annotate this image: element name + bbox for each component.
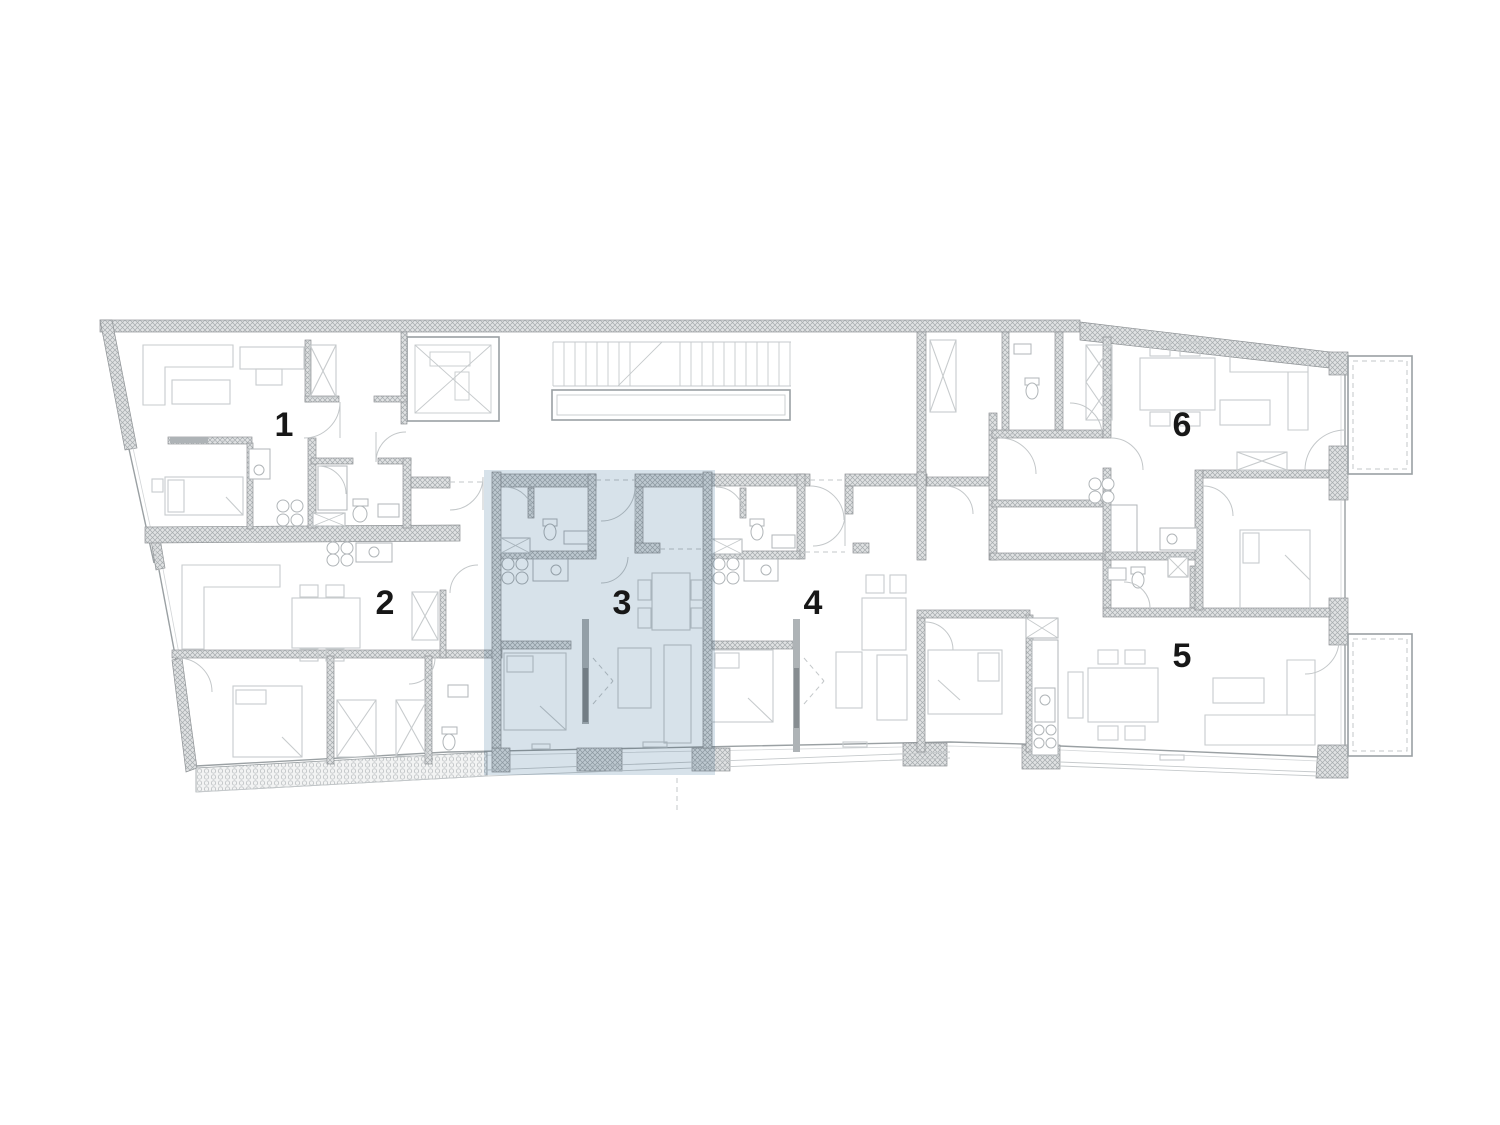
stairs: [552, 342, 791, 420]
floor-plan-page: 1 2 3 4 5 6: [0, 0, 1500, 1125]
bathroom-sink: [1014, 344, 1031, 354]
unit-6-label: 6: [1173, 406, 1192, 444]
unit-2-label: 2: [376, 584, 395, 622]
stair-railing: [552, 390, 790, 420]
unit-4-region[interactable]: [712, 472, 925, 772]
unit-2-region[interactable]: [150, 545, 480, 765]
unit-4-label: 4: [804, 584, 823, 622]
floor-plan-svg: 1 2 3 4 5 6: [0, 0, 1500, 1125]
balcony-top: [1348, 356, 1412, 474]
bed: [928, 650, 1002, 714]
unit-3-label: 3: [613, 584, 632, 622]
balcony-bottom: [1348, 634, 1412, 756]
unit-1-label: 1: [275, 406, 294, 444]
core-fixtures: [930, 340, 1039, 412]
unit-1-region[interactable]: [105, 332, 425, 528]
stair-core: [401, 332, 791, 424]
unit-6-region[interactable]: [1085, 340, 1345, 620]
unit-3-highlight[interactable]: [484, 470, 715, 775]
unit-hotspots: [105, 332, 1345, 772]
unit-5-label: 5: [1173, 637, 1192, 675]
